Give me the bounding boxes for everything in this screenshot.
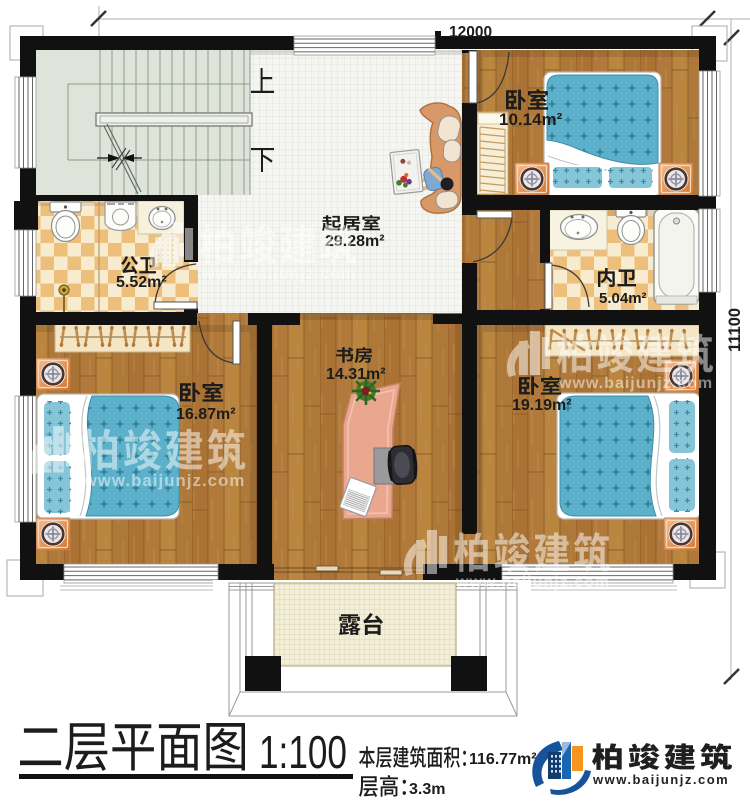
svg-text:3.3m: 3.3m bbox=[409, 781, 445, 798]
svg-text:16.87m²: 16.87m² bbox=[176, 406, 236, 423]
svg-text:10.14m²: 10.14m² bbox=[499, 110, 563, 129]
svg-text:12000: 12000 bbox=[449, 24, 492, 41]
svg-text:11100: 11100 bbox=[726, 308, 744, 352]
svg-text:19.19m²: 19.19m² bbox=[512, 397, 572, 414]
svg-text:116.77m²: 116.77m² bbox=[469, 751, 537, 768]
svg-text:14.31m²: 14.31m² bbox=[326, 366, 386, 383]
svg-text:5.52m²: 5.52m² bbox=[116, 274, 167, 291]
svg-text:www.baijunjz.com: www.baijunjz.com bbox=[592, 772, 729, 787]
svg-text:5.04m²: 5.04m² bbox=[599, 290, 647, 307]
svg-text:1:100: 1:100 bbox=[259, 726, 347, 778]
